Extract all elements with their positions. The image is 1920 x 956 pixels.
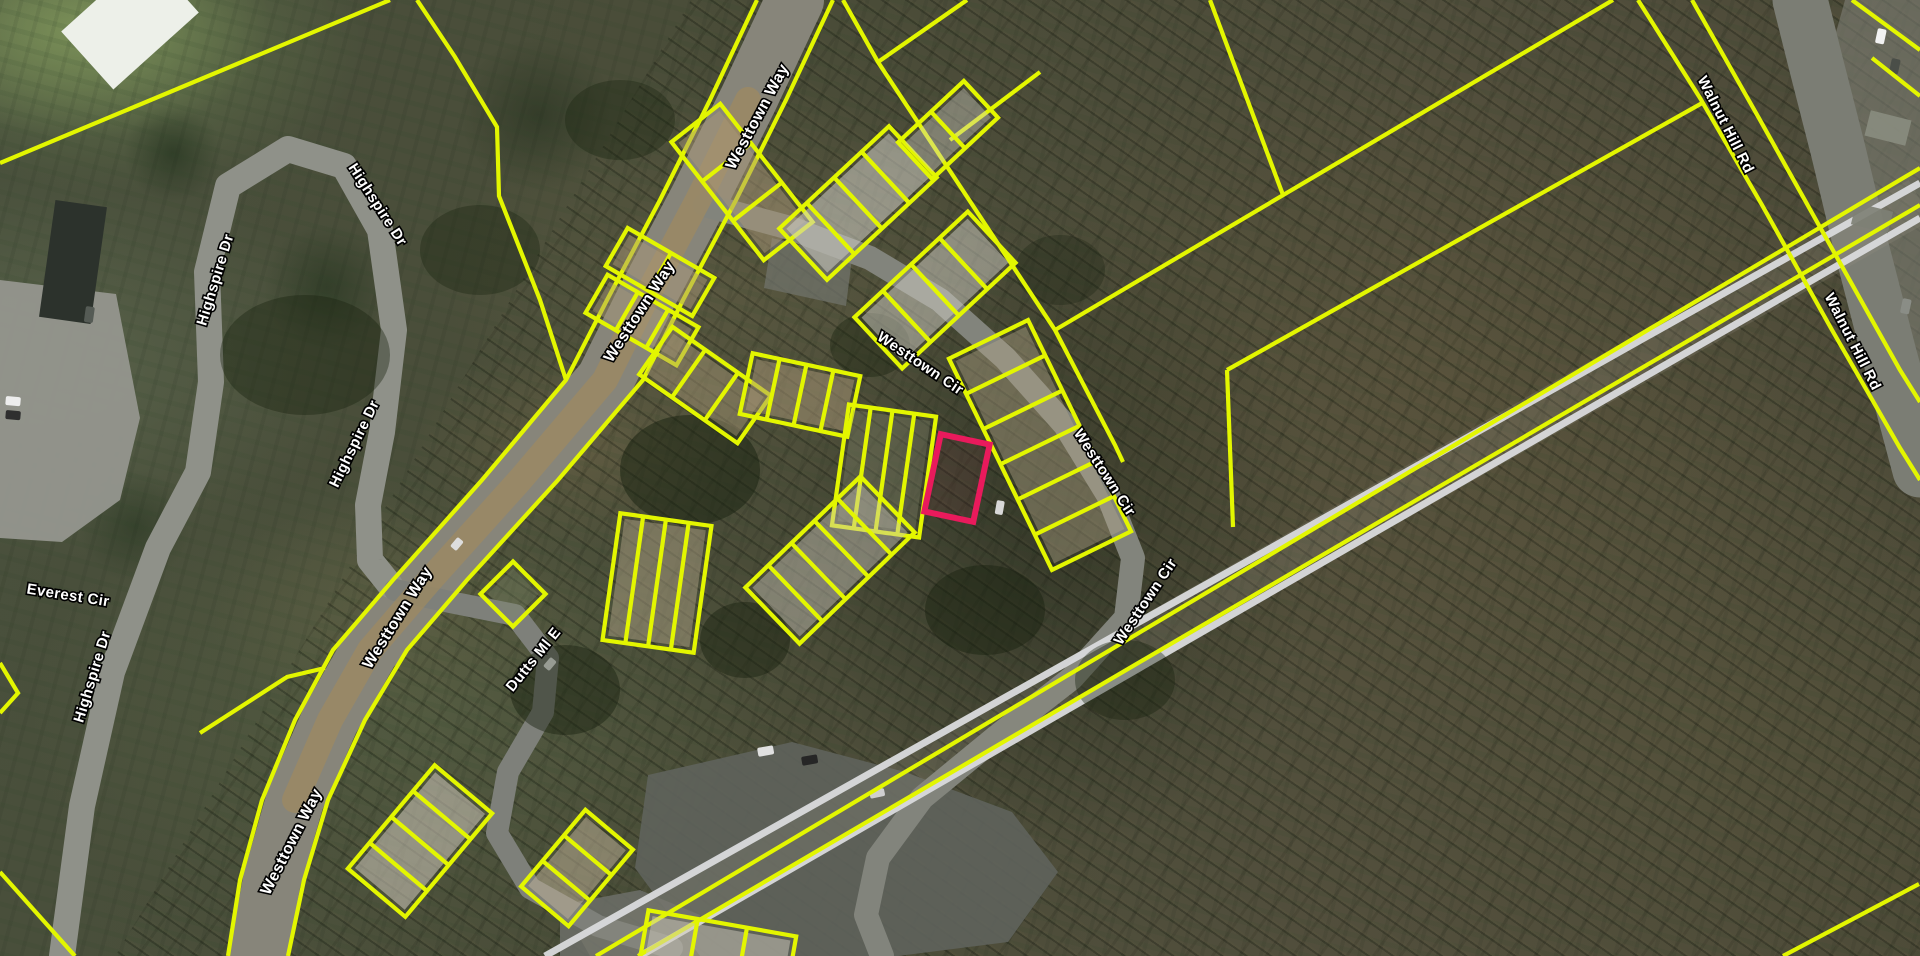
road-label-walnut-hill-rd: Walnut Hill Rd — [1694, 73, 1758, 176]
map-viewport[interactable]: Westtown WayWesttown WayWesttown WayWest… — [0, 0, 1920, 956]
car-1 — [5, 396, 21, 406]
tree-canopy — [925, 565, 1045, 655]
parcel-boundary-topleft[interactable] — [0, 0, 390, 163]
townhome-parcels-sw-1[interactable] — [348, 765, 492, 917]
parcel-overlay-layer: Westtown WayWesttown WayWesttown WayWest… — [0, 0, 1920, 956]
parcel-corner-left-edge[interactable] — [0, 663, 18, 713]
parcel-boundary-forest-connector[interactable] — [1227, 370, 1233, 527]
parcel-boundary-forest-diagonal-2[interactable] — [1227, 102, 1704, 370]
road-highspire-dr — [62, 149, 394, 956]
white-roof-building — [61, 0, 199, 89]
parcel-boundary-forest-top-b[interactable] — [1210, 0, 1283, 195]
townhome-parcels-south-2[interactable] — [603, 513, 712, 653]
tree-canopy — [220, 295, 390, 415]
selected-parcel-highlight[interactable] — [924, 434, 989, 522]
road-label-everest-cir: Everest Cir — [25, 581, 110, 611]
selected-parcel-outline[interactable] — [924, 434, 989, 522]
car-2 — [5, 410, 21, 420]
railroad-line-1 — [545, 183, 1920, 956]
car-12 — [995, 500, 1005, 515]
white-roof-building-roof — [61, 0, 199, 89]
tree-canopy — [1015, 235, 1105, 305]
tree-canopy — [565, 80, 675, 160]
parcel-boundary-forest-diagonal-1[interactable] — [1055, 0, 1613, 330]
parcel-boundary-forest-top-a[interactable] — [878, 0, 967, 62]
parcel-boundary-bottomright-corner[interactable] — [1783, 884, 1919, 956]
parcel-boundary-highspire-east[interactable] — [417, 0, 566, 380]
tree-canopy — [700, 602, 790, 678]
